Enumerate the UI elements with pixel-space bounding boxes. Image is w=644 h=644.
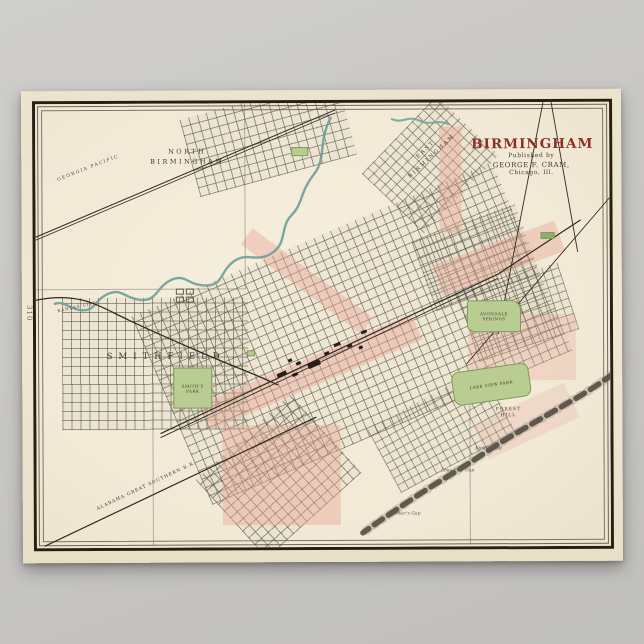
block-key-squares — [176, 289, 194, 303]
label-gap-2: Lone Pine Gap — [427, 468, 489, 473]
block-key-square — [186, 289, 194, 295]
smiths-park: SMITH'S PARK — [173, 367, 212, 408]
smiths-park-label-2: PARK — [186, 388, 199, 393]
avondale-springs-label-2: SPRINGS — [482, 316, 505, 321]
title-cartouche: BIRMINGHAM Published by GEORGE F. CRAM, … — [471, 136, 591, 178]
block-key-square — [176, 297, 184, 303]
small-park-downtown — [247, 350, 255, 356]
label-railroad-alabama-great-southern: ALABAMA GREAT SOUTHERN R.R. — [71, 449, 221, 523]
map-poster: 310 — [21, 89, 623, 564]
label-gap-3: Parker's Gap — [377, 512, 435, 517]
photo-background: 310 — [0, 0, 644, 644]
publisher-line-3: Chicago, Ill. — [471, 169, 591, 178]
label-railroad-georgia-pacific: GEORGIA PACIFIC — [44, 149, 133, 188]
map-title: BIRMINGHAM — [471, 136, 591, 153]
label-forest-hill: FOREST HILL — [486, 407, 530, 419]
lakeview-park-label: LAKE VIEW PARK — [469, 379, 513, 390]
city-limit-shading-3 — [222, 425, 340, 526]
label-smithfield: SMITHFIELD — [86, 351, 246, 362]
label-north-birmingham: NORTH BIRMINGHAM — [141, 146, 233, 166]
map-frame-border: SMITH'S PARK AVONDALE SPRINGS LAKE VIEW … — [32, 99, 614, 552]
small-park-east — [541, 232, 555, 239]
label-gap-1: Kimble Gap — [461, 446, 517, 451]
small-park-north — [291, 147, 308, 156]
map-canvas: SMITH'S PARK AVONDALE SPRINGS LAKE VIEW … — [35, 102, 611, 549]
avondale-springs-park: AVONDALE SPRINGS — [467, 300, 521, 332]
block-key-square — [176, 289, 184, 295]
block-key-square — [186, 297, 194, 303]
